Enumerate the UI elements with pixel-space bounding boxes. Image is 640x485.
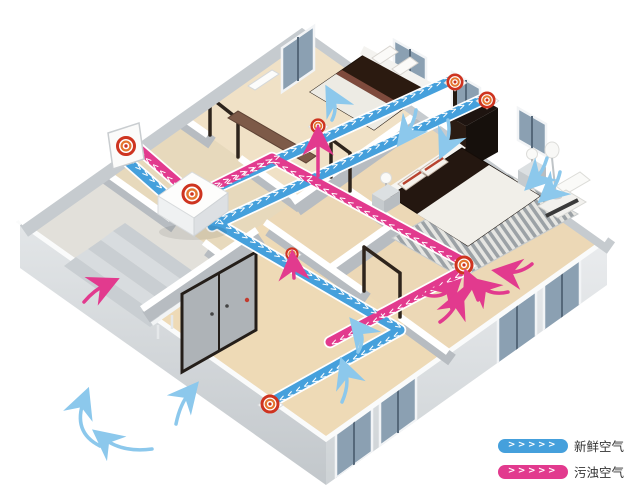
exhaust-air-label: 污浊空气 <box>574 462 624 481</box>
legend-item-exhaust-air: >>>>> 污浊空气 <box>498 462 624 481</box>
fresh-air-label: 新鲜空气 <box>574 436 624 455</box>
fresh-air-band: >>>>> <box>498 439 568 453</box>
house-illustration: >>>>>>>>>>>>>>>>>>>>>>>>>>>>>>>>>>>>>>>>… <box>0 0 640 485</box>
legend-item-fresh-air: >>>>> 新鲜空气 <box>498 436 624 455</box>
exhaust-air-chevrons: >>>>> <box>508 467 558 476</box>
ventilation-diagram: >>>>>>>>>>>>>>>>>>>>>>>>>>>>>>>>>>>>>>>>… <box>0 0 640 485</box>
fresh-air-chevrons: >>>>> <box>508 441 558 450</box>
legend: >>>>> 新鲜空气 >>>>> 污浊空气 <box>498 436 624 481</box>
hrv-unit-logo <box>183 185 201 203</box>
exhaust-air-band: >>>>> <box>498 465 568 479</box>
